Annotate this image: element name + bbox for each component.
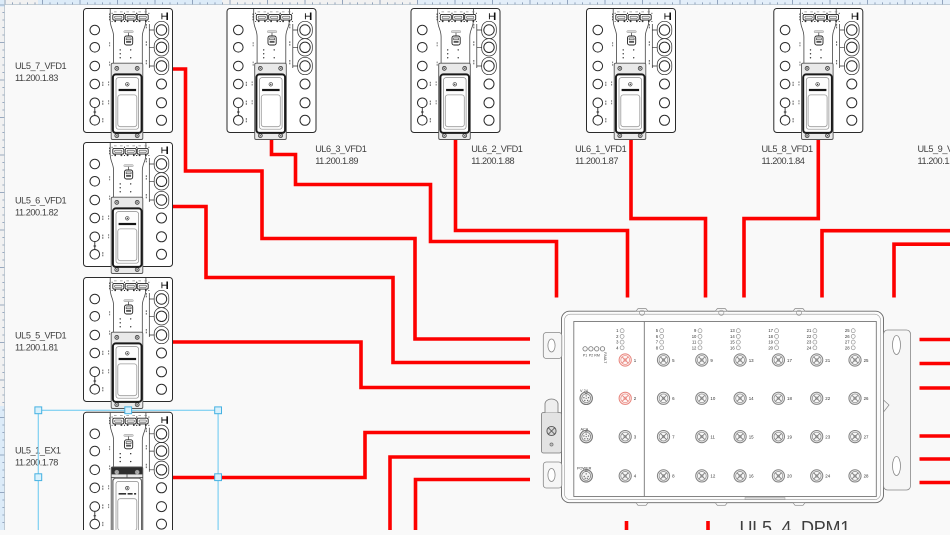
svg-text:14: 14 xyxy=(749,396,754,401)
svg-text:FAULT: FAULT xyxy=(603,352,607,364)
svg-text:18: 18 xyxy=(768,334,773,339)
svg-text:10: 10 xyxy=(692,334,697,339)
svg-text:27: 27 xyxy=(845,340,850,345)
svg-text:P2: P2 xyxy=(589,353,593,357)
svg-text:27: 27 xyxy=(864,434,869,439)
svg-text:18: 18 xyxy=(787,396,792,401)
svg-text:22: 22 xyxy=(825,396,830,401)
svg-text:21: 21 xyxy=(825,358,830,363)
svg-text:19: 19 xyxy=(787,434,792,439)
svg-text:25: 25 xyxy=(864,358,869,363)
svg-text:24: 24 xyxy=(825,474,830,479)
svg-text:26: 26 xyxy=(845,334,850,339)
svg-text:20: 20 xyxy=(787,474,792,479)
svg-text:13: 13 xyxy=(730,328,735,333)
svg-text:23: 23 xyxy=(807,340,812,345)
svg-text:24: 24 xyxy=(807,345,812,350)
svg-text:28: 28 xyxy=(845,345,850,350)
svg-text:16: 16 xyxy=(730,345,735,350)
svg-text:28: 28 xyxy=(864,474,869,479)
svg-text:15: 15 xyxy=(730,340,735,345)
svg-text:22: 22 xyxy=(807,334,812,339)
svg-text:26: 26 xyxy=(864,396,869,401)
svg-text:P1: P1 xyxy=(583,353,587,357)
svg-text:16: 16 xyxy=(749,474,754,479)
svg-text:17: 17 xyxy=(787,358,792,363)
svg-text:12: 12 xyxy=(710,474,715,479)
svg-text:10: 10 xyxy=(710,396,715,401)
svg-text:15: 15 xyxy=(749,434,754,439)
svg-text:13: 13 xyxy=(749,358,754,363)
svg-text:25: 25 xyxy=(845,328,850,333)
svg-text:23: 23 xyxy=(825,434,830,439)
svg-text:20: 20 xyxy=(768,345,773,350)
svg-text:21: 21 xyxy=(807,328,812,333)
svg-text:11: 11 xyxy=(710,434,715,439)
svg-text:UL5_4_DPM1: UL5_4_DPM1 xyxy=(740,518,851,530)
svg-text:11: 11 xyxy=(692,340,697,345)
svg-text:14: 14 xyxy=(730,334,735,339)
svg-text:RM: RM xyxy=(594,353,600,357)
svg-text:17: 17 xyxy=(768,328,773,333)
svg-text:19: 19 xyxy=(768,340,773,345)
svg-text:12: 12 xyxy=(692,345,697,350)
